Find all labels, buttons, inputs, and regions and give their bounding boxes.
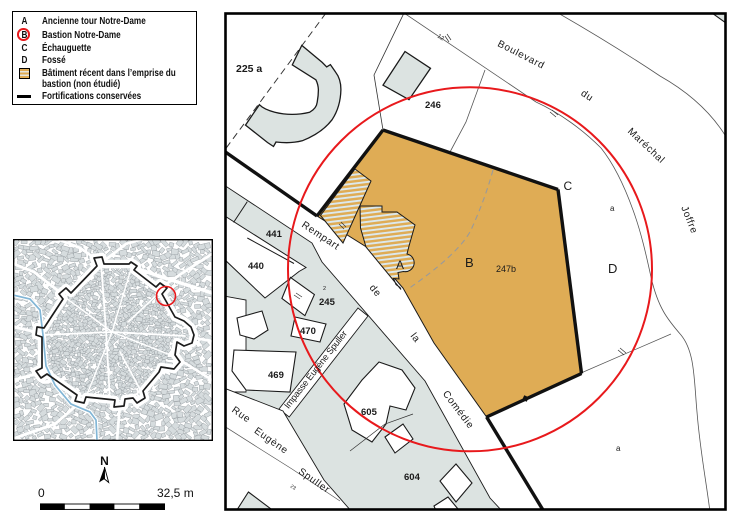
svg-text:a: a — [616, 444, 621, 453]
svg-text:245: 245 — [319, 297, 336, 308]
svg-text:605: 605 — [361, 407, 378, 418]
svg-text:441: 441 — [266, 229, 283, 240]
svg-text:C: C — [564, 179, 573, 193]
svg-text:469: 469 — [268, 370, 284, 381]
svg-text:470: 470 — [300, 326, 316, 337]
svg-text:a: a — [610, 204, 615, 213]
svg-text:604: 604 — [404, 472, 421, 483]
svg-text:B: B — [465, 255, 474, 270]
svg-text:246: 246 — [425, 100, 441, 111]
svg-text:247b: 247b — [496, 264, 516, 274]
svg-text:A: A — [396, 258, 404, 272]
svg-text:225 a: 225 a — [236, 63, 262, 75]
svg-text:440: 440 — [248, 261, 264, 272]
svg-text:2: 2 — [323, 286, 326, 292]
svg-text:D: D — [608, 261, 617, 276]
